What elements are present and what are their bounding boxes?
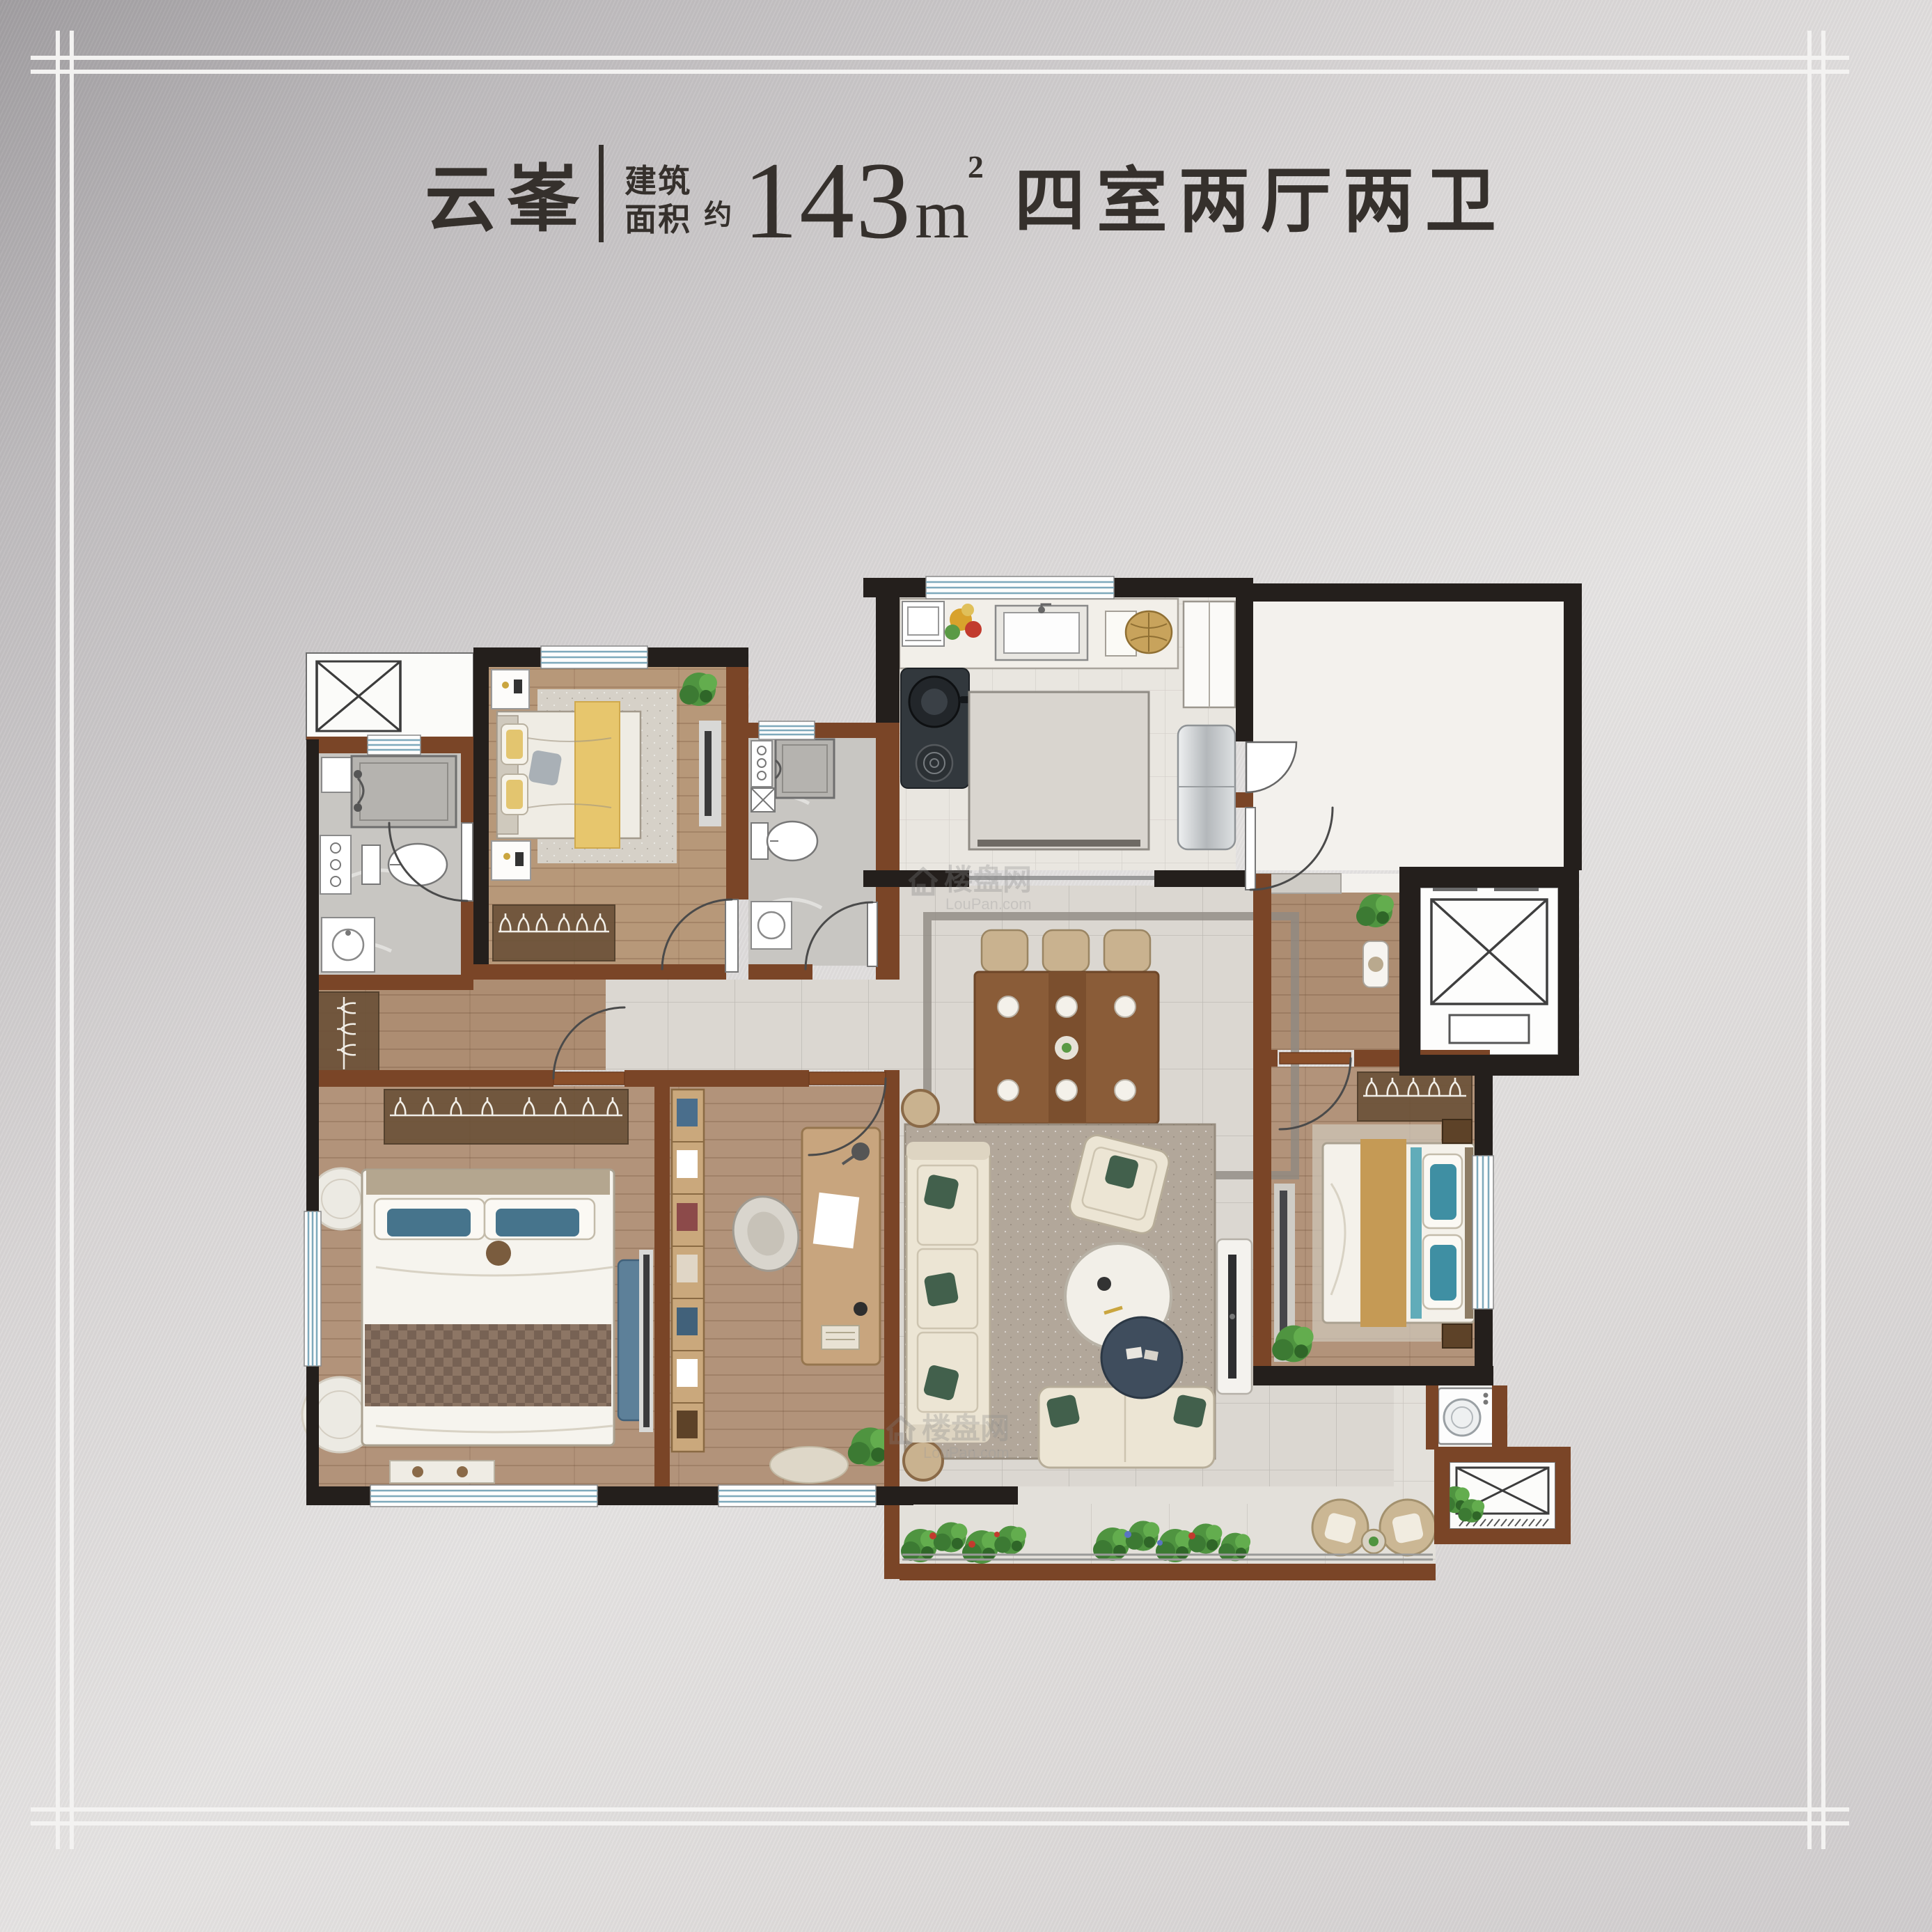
frame-line-right-inner: [1807, 31, 1812, 1849]
plan-title: 云峯 建筑 面积 约 143 m2 四室两厅两卫: [0, 145, 1932, 242]
shower-counter-icon: [776, 739, 834, 798]
floor-cushion: [770, 1447, 848, 1483]
small-appliance-icon: [902, 602, 944, 646]
window-band: [368, 735, 421, 755]
poster-canvas: 云峯 建筑 面积 约 143 m2 四室两厅两卫: [0, 0, 1932, 1932]
nightstand-icon: [492, 841, 531, 880]
frame-line-left-outer: [56, 31, 60, 1849]
bookshelf-icon: [672, 1090, 704, 1452]
window-band: [304, 1211, 321, 1366]
area-value: 143: [743, 158, 912, 244]
frame-line-right-outer: [1821, 31, 1825, 1849]
frame-line-top-inner: [31, 70, 1849, 74]
nightstand-icon: [1443, 1120, 1472, 1143]
window-band: [370, 1485, 597, 1507]
toilet-icon: [362, 844, 447, 886]
frame-line-bottom-outer: [31, 1821, 1849, 1825]
sofa-icon: [906, 1142, 990, 1443]
window-band: [926, 576, 1114, 599]
nightstand-icon: [1443, 1324, 1472, 1348]
project-name: 云峯: [425, 163, 589, 235]
island-counter-icon: [969, 692, 1149, 849]
window-band: [718, 1485, 876, 1507]
area-approx: 约: [704, 192, 732, 233]
tv-icon: [639, 1250, 653, 1432]
frame-line-bottom-inner: [31, 1807, 1849, 1812]
pantry-cabinet-icon: [1184, 602, 1235, 707]
floor-drain-icon: [751, 788, 775, 812]
floor-corridor-tile: [606, 980, 900, 1070]
bed-icon: [1323, 1139, 1475, 1327]
basket-icon: [1126, 611, 1172, 653]
area-label: 建筑 面积: [625, 162, 691, 238]
wardrobe-hangers-icon: [493, 905, 615, 961]
floor-utility-platform: [306, 653, 473, 739]
bed-icon: [497, 702, 641, 848]
area-label-line1: 建筑: [625, 162, 691, 200]
layout-spec: 四室两厅两卫: [1014, 166, 1507, 237]
washstand-icon: [320, 835, 351, 894]
shower-counter-icon: [352, 756, 456, 827]
wardrobe-hangers-icon: [1358, 1072, 1472, 1121]
svg-text:楼盘网: 楼盘网: [944, 863, 1032, 896]
floor-landing: [1253, 602, 1564, 893]
tv-icon: [699, 721, 721, 826]
washstand-icon: [751, 741, 772, 787]
title-divider: [599, 145, 604, 242]
loveseat-icon: [1039, 1387, 1214, 1468]
svg-text:LouPan.com: LouPan.com: [923, 1444, 1010, 1461]
svg-text:LouPan.com: LouPan.com: [945, 895, 1032, 913]
fridge-icon: [1178, 725, 1235, 849]
frame-line-top-outer: [31, 56, 1849, 60]
window-band: [759, 721, 815, 739]
kitchen-sink-icon: [996, 604, 1087, 660]
sink-icon: [751, 902, 792, 949]
sink-icon: [322, 918, 375, 972]
shelf-icon: [322, 757, 354, 792]
area-unit: m2: [915, 187, 985, 242]
window-bench-decor: [390, 1461, 494, 1483]
side-table-icon: [902, 1090, 938, 1126]
window-band: [1472, 1156, 1493, 1309]
washing-machine-icon: [1438, 1388, 1494, 1444]
wardrobe-hangers-icon: [311, 992, 379, 1074]
dining-table-icon: [975, 972, 1159, 1124]
wardrobe-hangers-icon: [384, 1090, 628, 1144]
desk-icon: [802, 1128, 880, 1365]
svg-text:楼盘网: 楼盘网: [922, 1412, 1010, 1445]
area-label-line2: 面积: [625, 201, 691, 238]
window-band: [541, 646, 647, 668]
bed-icon: [362, 1170, 614, 1445]
frame-line-left-inner: [70, 31, 74, 1849]
nightstand-icon: [492, 670, 529, 709]
tv-icon: [1217, 1239, 1252, 1394]
floor-plan: 楼盘网 LouPan.com 楼盘网 LouPan.com: [0, 0, 1932, 1932]
toilet-icon: [751, 822, 817, 861]
